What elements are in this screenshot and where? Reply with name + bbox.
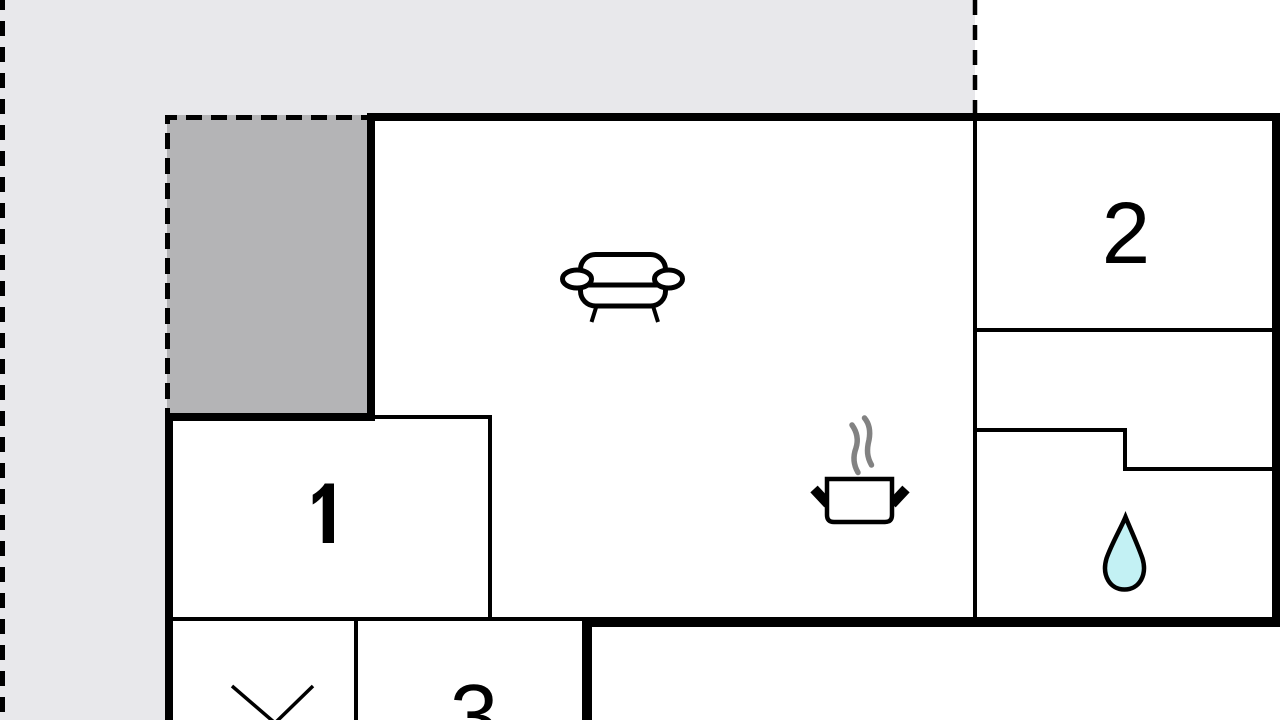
svg-text:3: 3 — [450, 667, 498, 720]
svg-text:2: 2 — [1102, 185, 1150, 282]
